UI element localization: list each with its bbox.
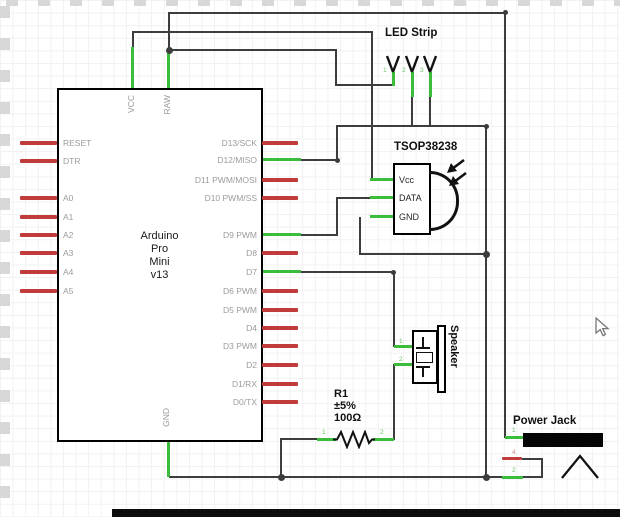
pin-stub-a2[interactable] [20, 233, 57, 237]
pin-stub-d5[interactable] [262, 308, 298, 312]
wire-segment-led1-in[interactable] [335, 84, 393, 86]
pin-stub-jack2[interactable] [502, 476, 523, 479]
arduino-title-line2: Pro [57, 243, 262, 256]
speaker-cone-bar[interactable] [437, 325, 446, 393]
pin-label-d1: D1/RX [232, 379, 257, 389]
pin-label-a1: A1 [63, 212, 73, 222]
tsop-label[interactable]: TSOP38238 [394, 141, 457, 153]
speaker-pin-number-2: 2 [399, 356, 403, 363]
pin-stub-a0[interactable] [20, 196, 57, 200]
arduino-title-line3: Mini [57, 256, 262, 269]
led-pin-number-2: 2 [402, 67, 406, 74]
tsop-pin-vcc: Vcc [399, 175, 414, 185]
ir-signal-arrows-icon [436, 157, 468, 197]
pin-label-gnd: GND [161, 408, 171, 427]
pin-label-d7: D7 [246, 267, 257, 277]
bend-dot[interactable] [484, 124, 489, 129]
pin-label-d9: D9 PWM [223, 230, 257, 240]
wire-green-vcc[interactable] [131, 47, 134, 88]
junction-dot[interactable] [483, 251, 490, 258]
pin-stub-d4[interactable] [262, 326, 298, 330]
pin-stub-speaker1[interactable] [394, 345, 412, 348]
wire-segment-raw-to-jack[interactable] [504, 12, 506, 438]
pin-label-d8: D8 [246, 248, 257, 258]
led-strip-label[interactable]: LED Strip [385, 27, 437, 39]
pin-label-d4: D4 [246, 323, 257, 333]
pin-label-d5: D5 PWM [223, 305, 257, 315]
tsop-pin-data: DATA [399, 193, 422, 203]
wire-green-raw[interactable] [167, 49, 170, 88]
power-jack-sleeve[interactable] [523, 433, 603, 447]
resistor-designator: R1 [334, 388, 361, 400]
wire-segment-spk2-down[interactable] [393, 364, 395, 440]
pin-stub-d0[interactable] [262, 400, 298, 404]
wire-segment-d9-out[interactable] [300, 234, 338, 236]
pin-stub-d3[interactable] [262, 344, 298, 348]
bend-dot[interactable] [335, 158, 340, 163]
pin-label-d11: D11 PWM/MOSI [195, 175, 257, 185]
pin-label-vcc: VCC [126, 95, 136, 113]
speaker-symbol-stem-top [422, 337, 424, 347]
pin-stub-tsop-vcc[interactable] [370, 178, 394, 181]
pin-label-d10: D10 PWM/SS [205, 193, 257, 203]
pin-stub-d1[interactable] [262, 382, 298, 386]
pin-stub-led1[interactable] [392, 72, 395, 86]
pin-stub-d2[interactable] [262, 363, 298, 367]
wire-segment-led3-stem[interactable] [429, 96, 431, 127]
pin-label-d12: D12/MISO [217, 155, 257, 165]
power-jack-spring-contact[interactable] [556, 452, 604, 480]
mouse-cursor-icon [595, 317, 611, 339]
wire-segment-led1-drop[interactable] [335, 49, 337, 86]
pin-stub-jack4[interactable] [502, 457, 522, 460]
pin-stub-d9[interactable] [262, 233, 301, 236]
pin-stub-dtr[interactable] [20, 159, 57, 163]
power-jack-pin-number-1: 1 [512, 427, 516, 434]
led-pin-number-1: 1 [383, 67, 387, 74]
arduino-title-line4: v13 [57, 269, 262, 282]
wire-segment-tsop-gnd-down[interactable] [359, 217, 361, 255]
led-strip-fork-1[interactable] [385, 55, 401, 74]
junction-dot[interactable] [166, 47, 173, 54]
speaker-symbol-bar-top [416, 347, 430, 349]
tsop-pin-gnd: GND [399, 212, 419, 222]
pin-stub-a1[interactable] [20, 215, 57, 219]
wire-segment-tsop-gnd-right[interactable] [359, 253, 487, 255]
wire-segment-raw-to-led[interactable] [170, 49, 336, 51]
led-pin-number-3: 3 [420, 67, 424, 74]
pin-stub-d13[interactable] [262, 141, 298, 145]
pin-label-dtr: DTR [63, 156, 80, 166]
wire-segment-jack4-down[interactable] [541, 458, 543, 478]
pin-label-d2: D2 [246, 360, 257, 370]
pin-stub-d11[interactable] [262, 178, 298, 182]
junction-dot[interactable] [278, 474, 285, 481]
power-jack-pin-number-2: 2 [512, 467, 516, 474]
speaker-pin-number-1: 1 [399, 338, 403, 345]
pin-label-d6: D6 PWM [223, 286, 257, 296]
bottom-black-bar [112, 509, 620, 517]
pin-label-a0: A0 [63, 193, 73, 203]
wire-segment-vcc-to-tsop[interactable] [371, 31, 373, 180]
wire-segment-d7-down[interactable] [393, 272, 395, 347]
pin-stub-d8[interactable] [262, 251, 298, 255]
led-strip-fork-3[interactable] [422, 55, 438, 74]
wire-segment-d9-up[interactable] [336, 197, 338, 236]
bend-dot[interactable] [391, 270, 396, 275]
pin-stub-d6[interactable] [262, 289, 298, 293]
wire-segment-raw-top[interactable] [169, 12, 506, 14]
resistor-value: 100Ω [334, 412, 361, 424]
pin-label-a5: A5 [63, 286, 73, 296]
pin-label-d3: D3 PWM [223, 341, 257, 351]
wire-segment-right-drop[interactable] [485, 126, 487, 478]
resistor-zigzag[interactable] [333, 430, 375, 449]
resistor-tolerance: ±5% [334, 400, 361, 412]
pin-stub-tsop-gnd[interactable] [370, 215, 394, 218]
pin-label-raw: RAW [162, 95, 172, 115]
resistor-pin-number-2: 2 [380, 429, 384, 436]
pin-stub-jack1[interactable] [505, 436, 524, 439]
bend-dot[interactable] [503, 10, 508, 15]
resistor-pin-number-1: 1 [322, 429, 326, 436]
schematic-canvas: Arduino Pro Mini v13 VCC RAW GND RESET D… [0, 0, 620, 517]
pin-label-reset: RESET [63, 138, 91, 148]
power-jack-label[interactable]: Power Jack [513, 415, 576, 427]
wire-segment-r1-gnd-drop[interactable] [280, 438, 282, 478]
pin-stub-d12[interactable] [262, 158, 301, 161]
pin-label-d0: D0/TX [233, 397, 257, 407]
speaker-symbol-stem-bottom [422, 367, 424, 377]
wire-segment-r1-left[interactable] [281, 438, 318, 440]
pin-stub-r1-right[interactable] [373, 438, 394, 441]
pin-stub-speaker2[interactable] [394, 363, 412, 366]
pin-stub-a3[interactable] [20, 251, 57, 255]
pin-label-a3: A3 [63, 248, 73, 258]
led-strip-fork-2[interactable] [404, 55, 420, 74]
pin-stub-a5[interactable] [20, 289, 57, 293]
pin-stub-led2[interactable] [411, 72, 414, 97]
wire-segment-jack4-right[interactable] [522, 458, 543, 460]
wire-green-gnd[interactable] [167, 440, 170, 477]
wire-segment-d7-out[interactable] [300, 271, 395, 273]
pin-stub-a4[interactable] [20, 270, 57, 274]
speaker-inner-rect [416, 352, 433, 363]
pin-stub-led3[interactable] [429, 72, 432, 97]
speaker-label[interactable]: Speaker [448, 325, 460, 368]
transparency-checker-top [0, 0, 620, 6]
pin-label-d13: D13/SCK [222, 138, 257, 148]
pin-stub-reset[interactable] [20, 141, 57, 145]
transparency-checker-left [0, 0, 10, 517]
pin-label-a2: A2 [63, 230, 73, 240]
wire-segment-d12-up[interactable] [336, 126, 338, 161]
pin-stub-d10[interactable] [262, 196, 298, 200]
pin-stub-tsop-data[interactable] [370, 196, 394, 199]
junction-dot[interactable] [483, 474, 490, 481]
pin-stub-d7[interactable] [262, 270, 301, 273]
resistor-label-block[interactable]: R1 ±5% 100Ω [334, 388, 361, 424]
wire-segment-led2-stem[interactable] [411, 96, 413, 127]
wire-segment-d12-out[interactable] [300, 159, 338, 161]
wire-segment-vcc-top[interactable] [133, 31, 373, 33]
pin-label-a4: A4 [63, 267, 73, 277]
wire-segment-data-in[interactable] [336, 197, 372, 199]
power-jack-pin-number-4: 4 [512, 449, 516, 456]
